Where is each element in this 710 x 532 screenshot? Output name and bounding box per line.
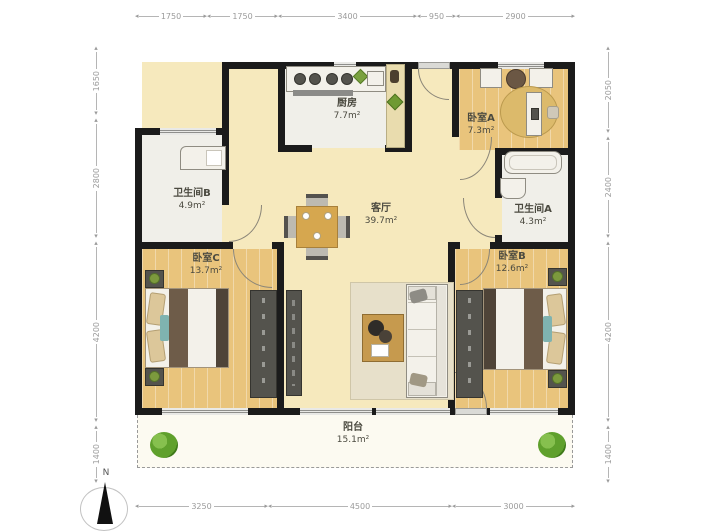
wall bbox=[135, 242, 233, 249]
stove-burner-icon bbox=[294, 73, 306, 85]
dim-right-4: ▴1400▾ bbox=[602, 424, 614, 485]
dining-chair bbox=[306, 194, 328, 206]
dim-right-2: ▴2400▾ bbox=[602, 135, 614, 240]
vase-icon bbox=[379, 330, 392, 343]
room-label-balcony: 阳台 15.1m² bbox=[318, 422, 388, 446]
wall bbox=[490, 242, 575, 249]
plate-icon bbox=[302, 212, 310, 220]
stove-burner-icon bbox=[326, 73, 338, 85]
room-label-bedroom-a: 卧室A 7.3m² bbox=[451, 113, 511, 137]
sliding-door-mullion bbox=[372, 408, 376, 415]
plant-icon bbox=[538, 432, 566, 458]
room-label-bathroom-b: 卫生间B 4.9m² bbox=[157, 188, 227, 212]
dim-right-1: ▴2050▾ bbox=[602, 45, 614, 135]
wall bbox=[278, 145, 312, 152]
dim-right-3: ▴4200▾ bbox=[602, 240, 614, 424]
stove-burner-icon bbox=[341, 73, 353, 85]
sofa-cushion-line bbox=[408, 356, 436, 357]
bottle-icon bbox=[390, 70, 399, 83]
blanket bbox=[169, 289, 188, 367]
side-table bbox=[547, 106, 559, 119]
dim-top-1: ◂1750▸ bbox=[135, 10, 207, 22]
stove-burner-icon bbox=[309, 73, 321, 85]
dining-chair bbox=[306, 248, 328, 260]
lamp-icon bbox=[552, 373, 563, 384]
wall bbox=[277, 242, 284, 408]
plant-icon bbox=[150, 432, 178, 458]
room-label-bedroom-b: 卧室B 12.6m² bbox=[477, 251, 547, 275]
north-needle-icon bbox=[97, 482, 113, 524]
dining-chair bbox=[284, 216, 296, 238]
room-label-kitchen: 厨房 7.7m² bbox=[312, 98, 382, 122]
room-label-living: 客厅 39.7m² bbox=[346, 203, 416, 227]
plate-icon bbox=[324, 212, 332, 220]
lamp-icon bbox=[149, 371, 160, 382]
cabinet bbox=[529, 68, 553, 88]
wall bbox=[568, 62, 575, 415]
dim-left-3: ▴4200▾ bbox=[90, 240, 102, 424]
compass-north-label: N bbox=[96, 468, 116, 478]
dim-top-4: ◂950▸ bbox=[417, 10, 456, 22]
tv-cabinet-detail bbox=[292, 300, 295, 386]
wall bbox=[405, 62, 412, 152]
kitchen-sink bbox=[367, 71, 384, 86]
window bbox=[160, 128, 216, 135]
wall bbox=[278, 62, 285, 152]
plate-icon bbox=[313, 232, 321, 240]
blanket bbox=[524, 289, 543, 369]
tray-icon bbox=[371, 344, 389, 357]
cabinet bbox=[480, 68, 502, 88]
dim-top-3: ◂3400▸ bbox=[278, 10, 417, 22]
dim-top-2: ◂1750▸ bbox=[207, 10, 278, 22]
room-label-bathroom-a: 卫生间A 4.3m² bbox=[498, 204, 568, 228]
dim-bottom-1: ◂3250▸ bbox=[135, 500, 268, 512]
room-label-bedroom-c: 卧室C 13.7m² bbox=[171, 253, 241, 277]
sofa-cushion-line bbox=[408, 329, 436, 330]
bed-footboard bbox=[216, 289, 228, 367]
window bbox=[490, 408, 558, 415]
wall bbox=[222, 62, 229, 205]
bed-footboard bbox=[484, 289, 496, 369]
bathroom-sink bbox=[500, 178, 526, 199]
wardrobe-hangers bbox=[468, 298, 471, 390]
dim-top-5: ◂2900▸ bbox=[456, 10, 575, 22]
lamp-icon bbox=[552, 271, 563, 282]
counter-edge bbox=[293, 90, 353, 96]
compass: N bbox=[78, 468, 134, 532]
bedroom-b-balcony-door-leaf bbox=[455, 408, 487, 415]
dim-left-2: ▴2800▾ bbox=[90, 117, 102, 240]
dim-bottom-3: ◂3000▸ bbox=[452, 500, 575, 512]
blanket-fold bbox=[543, 316, 552, 342]
desk-chair bbox=[531, 108, 539, 120]
wardrobe-hangers bbox=[262, 298, 265, 390]
lamp-icon bbox=[149, 273, 160, 284]
sink-basin bbox=[206, 150, 222, 166]
wall bbox=[135, 128, 142, 415]
window bbox=[162, 408, 248, 415]
dim-left-1: ▴1650▾ bbox=[90, 45, 102, 117]
floor-plan: ◂1750▸ ◂1750▸ ◂3400▸ ◂950▸ ◂2900▸ ◂3250▸… bbox=[0, 0, 710, 532]
entry-door-leaf bbox=[418, 62, 450, 69]
blanket-fold bbox=[160, 315, 169, 341]
sofa-backrest bbox=[436, 286, 446, 396]
dim-bottom-2: ◂4500▸ bbox=[268, 500, 452, 512]
bathtub-inner bbox=[509, 155, 557, 170]
